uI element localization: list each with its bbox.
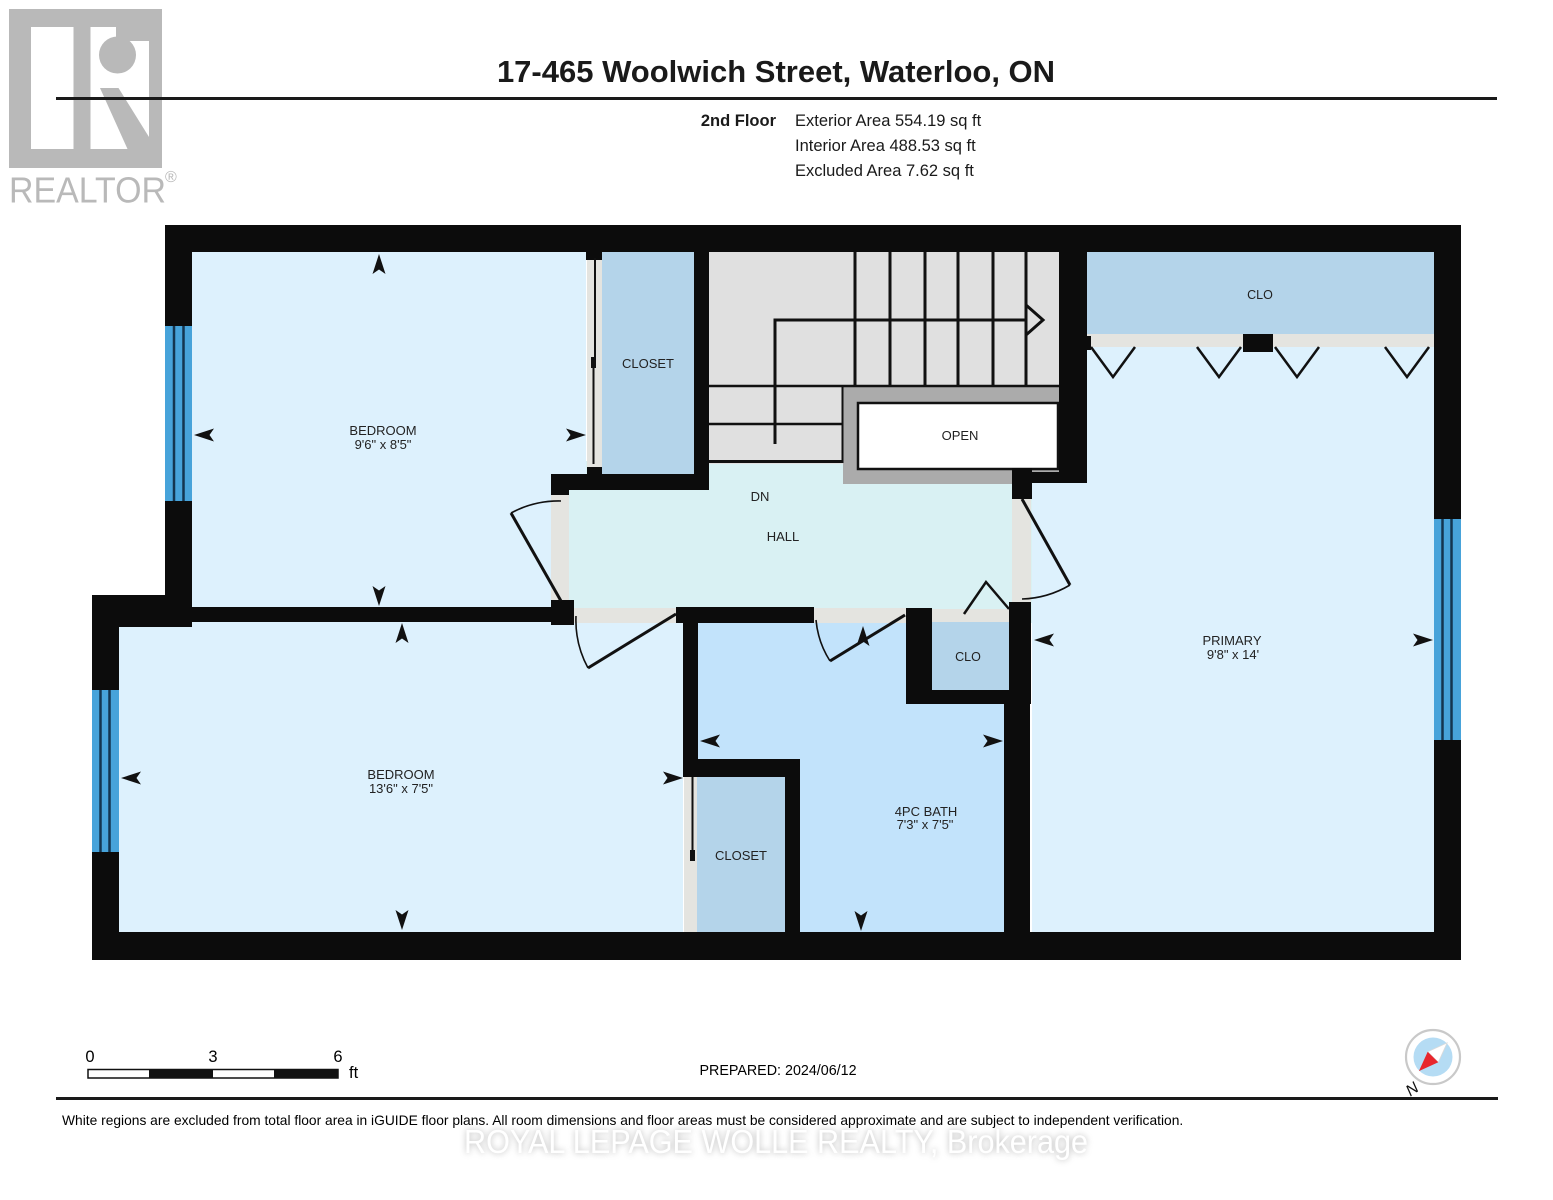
- svg-text:9'8" x 14': 9'8" x 14': [1207, 647, 1259, 662]
- svg-text:7'3" x 7'5": 7'3" x 7'5": [897, 817, 954, 832]
- svg-text:Excluded Area 7.62 sq ft: Excluded Area 7.62 sq ft: [795, 162, 974, 180]
- svg-text:CLO: CLO: [955, 650, 981, 664]
- svg-text:OPEN: OPEN: [942, 428, 979, 443]
- svg-text:BEDROOM: BEDROOM: [367, 767, 434, 782]
- svg-text:6: 6: [333, 1048, 342, 1066]
- svg-text:0: 0: [85, 1048, 94, 1066]
- svg-text:CLO: CLO: [1247, 288, 1273, 302]
- svg-text:PREPARED: 2024/06/12: PREPARED: 2024/06/12: [699, 1063, 856, 1079]
- svg-text:PRIMARY: PRIMARY: [1203, 633, 1262, 648]
- svg-text:ft: ft: [349, 1064, 359, 1082]
- svg-text:DN: DN: [751, 489, 770, 504]
- svg-text:CLOSET: CLOSET: [715, 848, 767, 863]
- svg-text:Interior Area 488.53 sq ft: Interior Area 488.53 sq ft: [795, 137, 976, 155]
- svg-text:BEDROOM: BEDROOM: [349, 423, 416, 438]
- svg-text:ROYAL LEPAGE WOLLE REALTY, Bro: ROYAL LEPAGE WOLLE REALTY, Brokerage: [464, 1123, 1088, 1160]
- svg-text:®: ®: [165, 169, 177, 186]
- svg-text:Exterior Area 554.19 sq ft: Exterior Area 554.19 sq ft: [795, 112, 982, 130]
- svg-text:HALL: HALL: [767, 529, 800, 544]
- svg-text:3: 3: [208, 1048, 217, 1066]
- svg-text:CLOSET: CLOSET: [622, 356, 674, 371]
- svg-text:REALTOR: REALTOR: [9, 170, 166, 211]
- svg-text:17-465 Woolwich Street, Waterl: 17-465 Woolwich Street, Waterloo, ON: [497, 54, 1055, 89]
- svg-text:2nd Floor: 2nd Floor: [701, 112, 777, 130]
- svg-text:9'6" x 8'5": 9'6" x 8'5": [355, 437, 412, 452]
- svg-text:13'6" x 7'5": 13'6" x 7'5": [369, 781, 433, 796]
